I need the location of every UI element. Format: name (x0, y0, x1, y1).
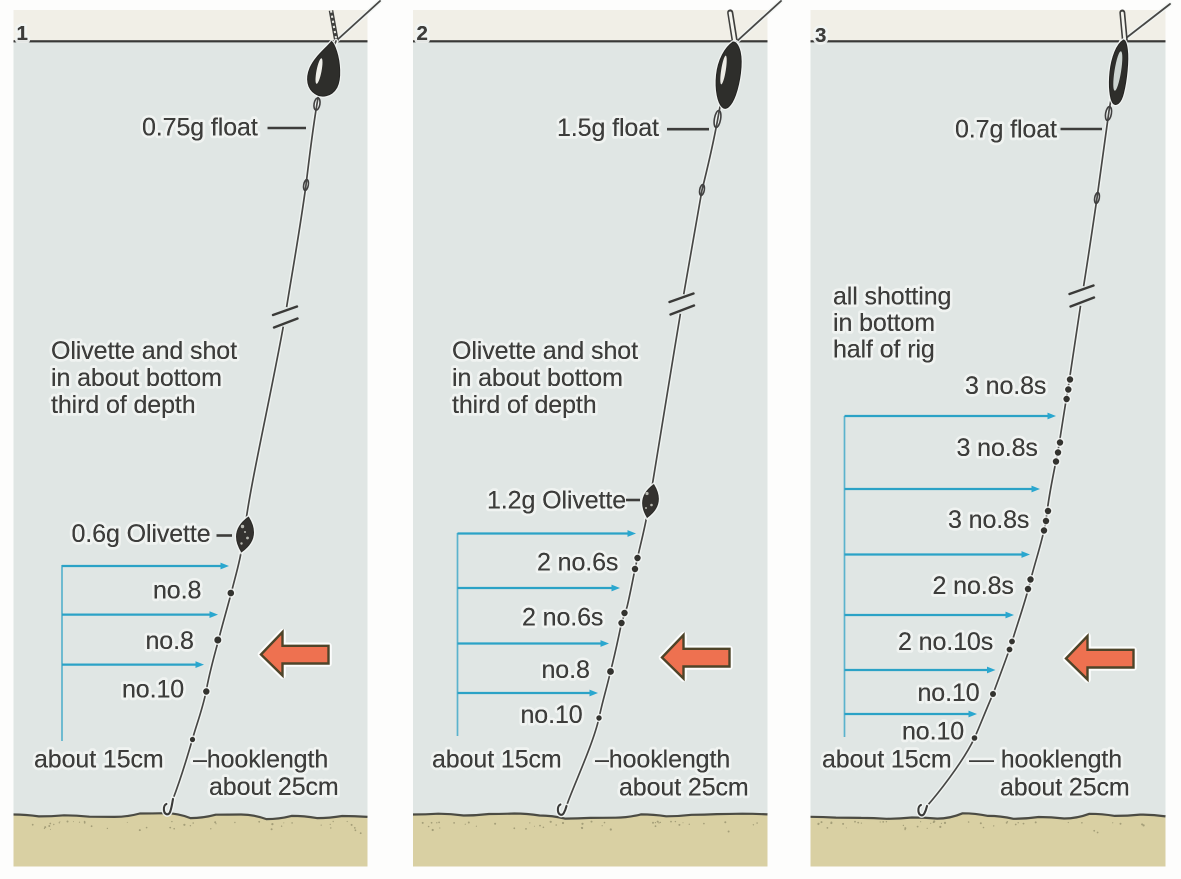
svg-text:Olivette and shot: Olivette and shot (452, 337, 638, 365)
svg-text:Olivette and shot: Olivette and shot (51, 337, 237, 365)
svg-text:about 15cm: about 15cm (822, 746, 952, 774)
svg-text:2: 2 (417, 22, 428, 45)
svg-text:about 25cm: about 25cm (619, 774, 749, 802)
svg-text:about 15cm: about 15cm (34, 746, 164, 774)
svg-text:in bottom: in bottom (833, 309, 935, 337)
svg-text:no.8: no.8 (153, 577, 201, 605)
svg-text:0.7g float: 0.7g float (955, 116, 1057, 144)
svg-text:half of rig: half of rig (833, 336, 935, 364)
svg-text:3 no.8s: 3 no.8s (948, 506, 1029, 534)
svg-text:— hooklength: — hooklength (969, 746, 1122, 774)
svg-text:no.10: no.10 (122, 676, 184, 704)
svg-text:–hooklength: –hooklength (595, 746, 730, 774)
svg-text:3 no.8s: 3 no.8s (965, 372, 1046, 400)
svg-text:third of depth: third of depth (51, 391, 196, 419)
svg-text:0.75g float: 0.75g float (142, 114, 258, 142)
svg-text:2 no.6s: 2 no.6s (522, 603, 603, 631)
svg-text:no.8: no.8 (542, 656, 590, 684)
svg-text:all shotting: all shotting (833, 283, 951, 311)
svg-text:2 no.10s: 2 no.10s (898, 628, 993, 656)
svg-text:–hooklength: –hooklength (193, 746, 328, 774)
svg-text:1.2g Olivette: 1.2g Olivette (487, 487, 626, 515)
svg-text:no.8: no.8 (146, 627, 194, 655)
svg-text:no.10: no.10 (918, 679, 980, 707)
svg-text:2 no.6s: 2 no.6s (537, 549, 618, 577)
svg-text:3 no.8s: 3 no.8s (957, 434, 1038, 462)
svg-text:third of depth: third of depth (452, 391, 597, 419)
svg-text:about 25cm: about 25cm (209, 773, 339, 801)
svg-text:in about bottom: in about bottom (51, 364, 222, 392)
svg-text:no.10: no.10 (902, 718, 964, 746)
svg-text:2 no.8s: 2 no.8s (933, 572, 1014, 600)
svg-text:about 15cm: about 15cm (432, 746, 562, 774)
svg-text:in about bottom: in about bottom (452, 364, 623, 392)
svg-text:no.10: no.10 (521, 701, 583, 729)
svg-text:0.6g Olivette: 0.6g Olivette (72, 520, 211, 548)
svg-text:1.5g float: 1.5g float (557, 114, 659, 142)
svg-text:about 25cm: about 25cm (1000, 774, 1130, 802)
svg-text:3: 3 (815, 24, 826, 47)
svg-text:1: 1 (17, 22, 28, 45)
